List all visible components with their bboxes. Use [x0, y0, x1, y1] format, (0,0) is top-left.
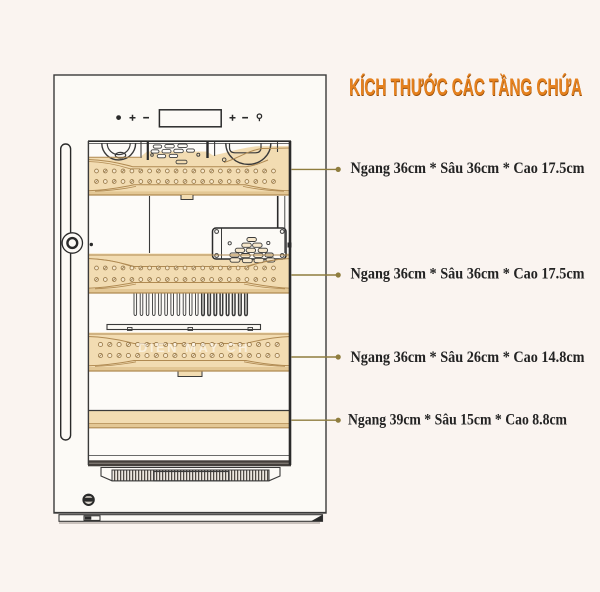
svg-text:Ngang 36cm * Sâu 36cm * Cao 17: Ngang 36cm * Sâu 36cm * Cao 17.5cm	[351, 266, 586, 283]
svg-text:Ngang 36cm * Sâu 26cm * Cao 14: Ngang 36cm * Sâu 26cm * Cao 14.8cm	[351, 349, 586, 366]
svg-text:Ngang 39cm * Sâu 15cm * Cao 8.: Ngang 39cm * Sâu 15cm * Cao 8.8cm	[348, 412, 568, 429]
svg-text:DIEN MAY CH: DIEN MAY CH	[138, 340, 250, 355]
svg-text:KÍCH THƯỚC CÁC TẦNG CHỨA: KÍCH THƯỚC CÁC TẦNG CHỨA	[349, 73, 582, 101]
svg-text:Ngang 36cm * Sâu 36cm * Cao 17: Ngang 36cm * Sâu 36cm * Cao 17.5cm	[351, 160, 586, 177]
